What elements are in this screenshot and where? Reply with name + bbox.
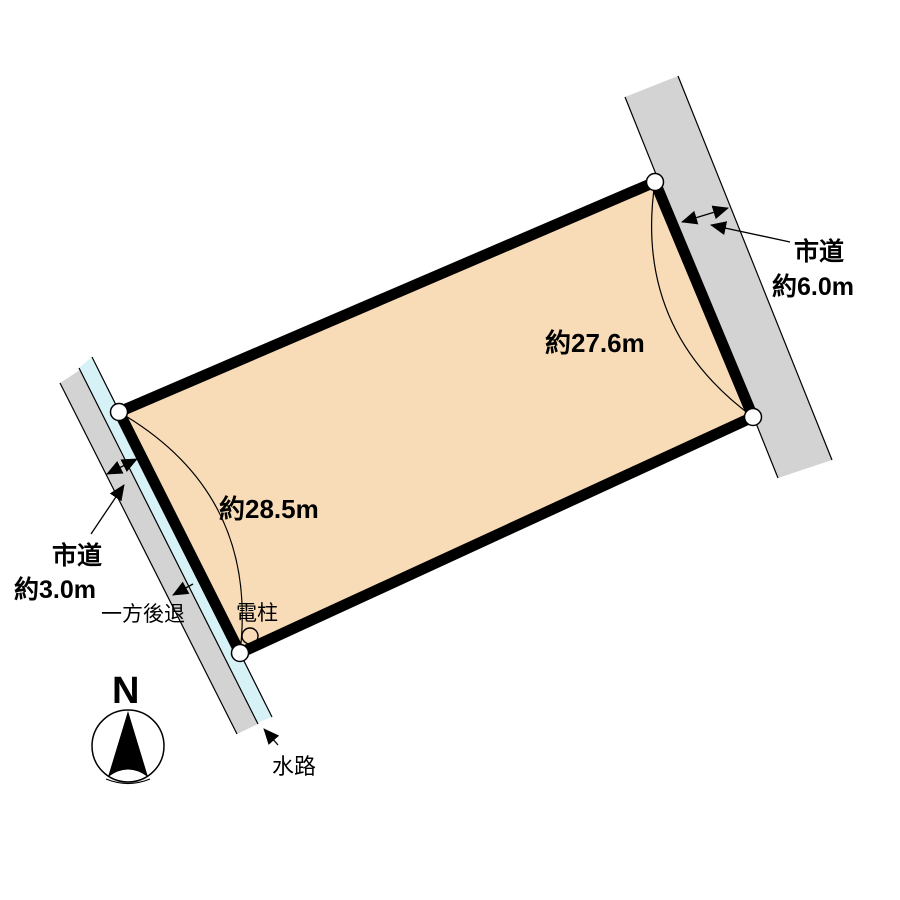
utility-pole-label: 電柱 bbox=[236, 602, 278, 625]
road-sw-width-label: 約3.0m bbox=[14, 575, 96, 604]
road-sw-leader-arrow bbox=[91, 485, 124, 534]
compass-north-indicator: N bbox=[92, 670, 164, 784]
site-plan-page: 約27.6m 約28.5m 市道 約6.0m 市道 約3.0m 一方後退 電柱 … bbox=[0, 0, 900, 900]
parcel-polygon bbox=[119, 182, 753, 653]
waterway-arrow bbox=[264, 729, 278, 745]
vertex-marker-west bbox=[111, 404, 128, 421]
vertex-marker-north bbox=[647, 174, 664, 191]
vertex-marker-south bbox=[232, 645, 249, 662]
site-plan-diagram: 約27.6m 約28.5m 市道 約6.0m 市道 約3.0m 一方後退 電柱 … bbox=[0, 0, 900, 900]
waterway-label: 水路 bbox=[272, 754, 316, 779]
dimension-east-label: 約27.6m bbox=[545, 328, 645, 358]
vertex-marker-east bbox=[745, 409, 762, 426]
compass-north-label: N bbox=[112, 670, 139, 712]
road-ne-width-label: 約6.0m bbox=[772, 272, 854, 301]
setback-label: 一方後退 bbox=[101, 603, 185, 626]
dimension-west-label: 約28.5m bbox=[219, 494, 319, 524]
road-sw-name-label: 市道 bbox=[52, 541, 102, 570]
road-ne-name-label: 市道 bbox=[794, 237, 844, 266]
